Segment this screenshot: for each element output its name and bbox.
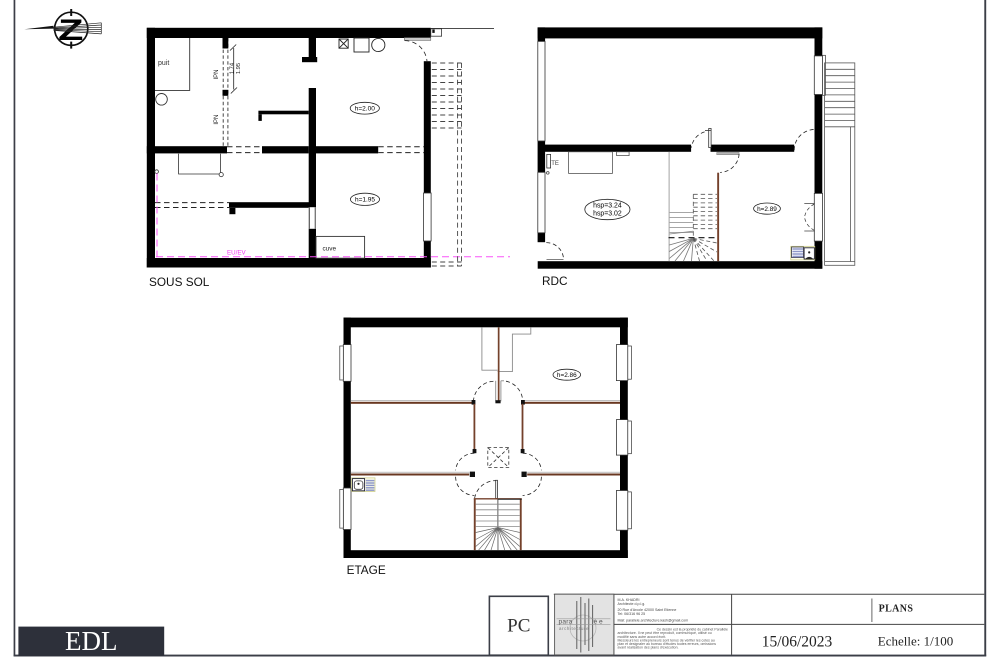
svg-text:Mail: parallele.architecture.k: Mail: parallele.architecture.kash@gmail.… [618, 619, 689, 623]
svg-text:IPN: IPN [214, 115, 220, 125]
svg-text:1.95: 1.95 [236, 63, 242, 74]
svg-text:architecture: architecture [559, 626, 589, 631]
svg-text:h=2.00: h=2.00 [355, 106, 375, 113]
svg-text:puit: puit [158, 60, 169, 67]
svg-text:1.74: 1.74 [230, 62, 236, 74]
svg-text:h=2.86: h=2.86 [557, 372, 577, 379]
svg-text:TE: TE [551, 161, 559, 167]
svg-text:Tel: 06/316 96 25: Tel: 06/316 96 25 [618, 612, 646, 616]
svg-text:para: para [559, 619, 573, 626]
svg-text:PC: PC [507, 616, 530, 637]
svg-text:EDL: EDL [65, 626, 117, 656]
svg-text:PLANS: PLANS [879, 603, 914, 614]
svg-text:h=2.89: h=2.89 [757, 206, 777, 213]
svg-text:EU/EV: EU/EV [227, 250, 246, 257]
svg-text:Echelle: 1/100: Echelle: 1/100 [878, 634, 953, 649]
svg-text:cuve: cuve [323, 246, 337, 253]
svg-text:è e: è e [594, 619, 603, 626]
svg-text:Architecte d.p.l.g.: Architecte d.p.l.g. [618, 602, 646, 606]
svg-text:15/06/2023: 15/06/2023 [762, 633, 833, 650]
svg-text:SOUS SOL: SOUS SOL [149, 275, 210, 289]
svg-text:h=1.95: h=1.95 [355, 197, 375, 204]
svg-text:hsp=3.02: hsp=3.02 [593, 211, 622, 218]
svg-text:hsp=3.24: hsp=3.24 [593, 202, 622, 209]
svg-text:RDC: RDC [542, 274, 568, 288]
svg-text:ETAGE: ETAGE [347, 563, 386, 577]
svg-text:avant réalisation des plans d': avant réalisation des plans d'exécution. [618, 646, 679, 650]
svg-text:IPN: IPN [214, 69, 220, 79]
